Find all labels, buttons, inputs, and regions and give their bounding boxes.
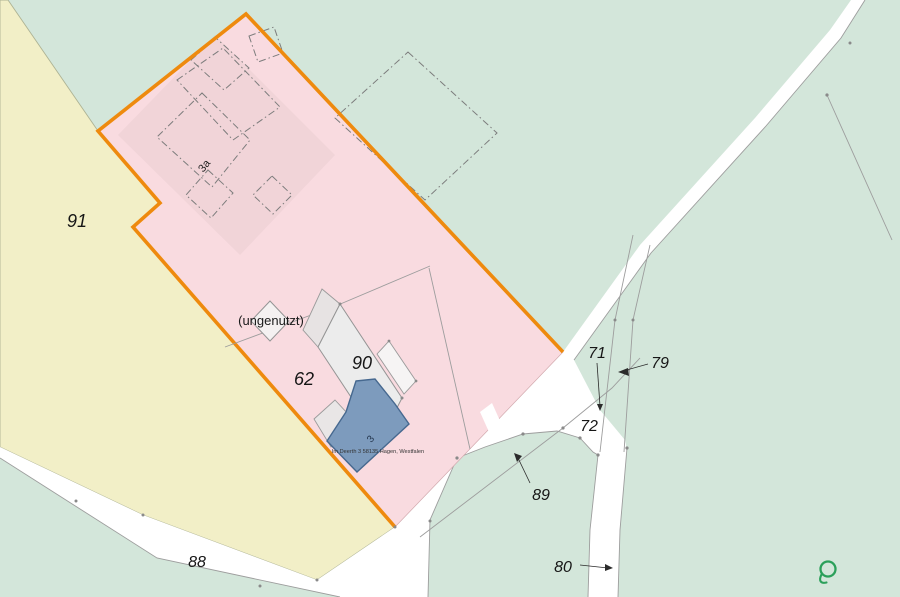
parcel-label-91: 91 xyxy=(67,211,87,231)
cadastral-map-canvas[interactable]: 91 62 90 88 89 80 72 71 79 3a 3 (ungenut… xyxy=(0,0,900,597)
cadastral-map-viewport[interactable]: 91 62 90 88 89 80 72 71 79 3a 3 (ungenut… xyxy=(0,0,900,597)
parcel-label-62: 62 xyxy=(294,369,314,389)
parcel-label-88: 88 xyxy=(188,554,206,571)
unused-annotation: (ungenutzt) xyxy=(238,313,304,328)
address-label: Im Deerth 3 58135 Hagen, Westfalen xyxy=(332,449,424,455)
parcel-label-79: 79 xyxy=(651,355,669,372)
parcel-label-80: 80 xyxy=(554,559,572,576)
parcel-label-71: 71 xyxy=(588,345,606,362)
parcel-label-89: 89 xyxy=(532,487,550,504)
parcel-label-72: 72 xyxy=(580,418,598,435)
parcel-label-90: 90 xyxy=(352,353,372,373)
